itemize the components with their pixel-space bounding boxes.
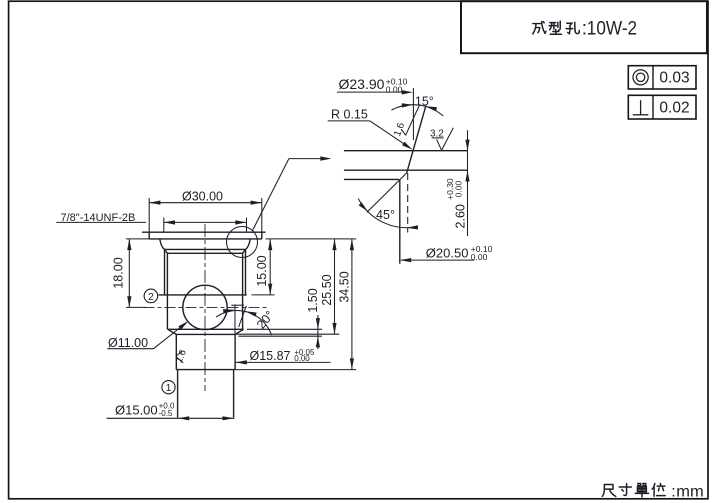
svg-text:3.2: 3.2 bbox=[430, 129, 444, 140]
svg-text:10W-2: 10W-2 bbox=[587, 18, 637, 39]
svg-text:R 0.15: R 0.15 bbox=[331, 108, 368, 122]
svg-text:Ø20.50: Ø20.50 bbox=[426, 246, 469, 261]
svg-text:Ø11.00: Ø11.00 bbox=[108, 336, 148, 350]
svg-text:0.00: 0.00 bbox=[471, 252, 488, 262]
svg-text:2: 2 bbox=[148, 291, 154, 303]
svg-text:0.03: 0.03 bbox=[659, 70, 689, 87]
svg-text:mm: mm bbox=[676, 484, 703, 501]
svg-text:0.02: 0.02 bbox=[659, 99, 689, 116]
svg-text:18.00: 18.00 bbox=[112, 257, 126, 288]
svg-text:1: 1 bbox=[166, 382, 172, 394]
svg-text:2.60: 2.60 bbox=[454, 204, 468, 228]
svg-text:34.50: 34.50 bbox=[338, 271, 352, 302]
svg-text:Ø23.90: Ø23.90 bbox=[339, 76, 385, 92]
svg-text:15.00: 15.00 bbox=[255, 255, 269, 286]
svg-text:45°: 45° bbox=[376, 208, 395, 222]
svg-text:-0.5: -0.5 bbox=[159, 409, 173, 418]
svg-text:Ø30.00: Ø30.00 bbox=[182, 189, 223, 203]
svg-text:0.00: 0.00 bbox=[294, 354, 310, 363]
svg-text:Ø15.00: Ø15.00 bbox=[115, 403, 158, 418]
svg-text:15°: 15° bbox=[415, 95, 434, 109]
svg-text::: : bbox=[671, 484, 675, 501]
svg-text:0.00: 0.00 bbox=[386, 85, 403, 95]
svg-text:Ø15.87: Ø15.87 bbox=[250, 349, 291, 363]
svg-text:1.50: 1.50 bbox=[306, 288, 320, 312]
svg-text:25.50: 25.50 bbox=[320, 274, 334, 305]
svg-text:0.00: 0.00 bbox=[453, 181, 463, 198]
